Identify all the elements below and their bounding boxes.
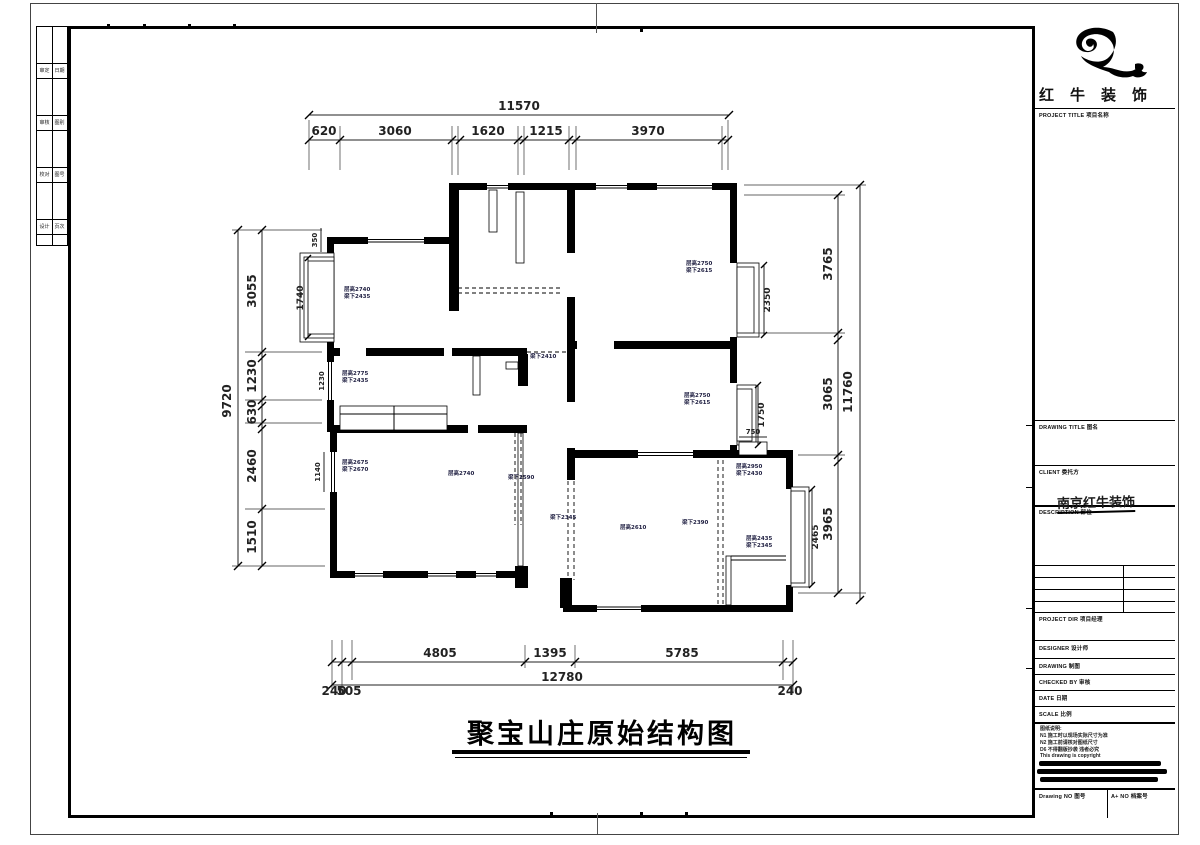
room-label: 梁下2345: [549, 513, 576, 521]
room-label: 梁下2590: [507, 473, 534, 481]
room-label: 梁下2615: [685, 266, 712, 274]
title-block: 红牛装饰 PROJECT TITLE 项目名称 DRAWING TITLE 图名…: [1032, 26, 1175, 818]
dim-bottom-total: 12780: [541, 670, 583, 684]
room-label: 层高2740: [344, 285, 370, 293]
room-label: 梁下2615: [683, 398, 710, 406]
redacted-note: [1039, 761, 1161, 766]
tb-divider: [1035, 577, 1175, 578]
tb-note: 图纸说明:: [1040, 725, 1062, 732]
tb-divider: [1035, 420, 1175, 421]
dim-right-seg: 3065: [821, 377, 835, 410]
room-label: 梁下2435: [343, 292, 370, 300]
dim-bottom-end: 505: [336, 684, 361, 698]
tb-divider: [1035, 589, 1175, 590]
redacted-note: [1037, 769, 1167, 774]
tb-drawing-no-label: Drawing NO 图号: [1039, 792, 1086, 800]
tb-table-divider: [1123, 565, 1124, 612]
room-label: 层高2950: [736, 462, 762, 470]
dim-left-seg: 1510: [245, 520, 259, 553]
tb-divider: [1035, 601, 1175, 602]
dim-left-seg: 630: [245, 399, 259, 424]
tb-divider: [1035, 465, 1175, 466]
tb-drawing-title-label: DRAWING TITLE 图名: [1039, 423, 1098, 431]
room-label: 梁下2410: [529, 352, 556, 360]
tb-project-dir-label: PROJECT DIR 项目经理: [1039, 615, 1103, 623]
dim-right-seg: 3965: [821, 507, 835, 540]
dim-left-total: 9720: [220, 384, 234, 417]
dim-left-seg: 3055: [245, 274, 259, 307]
tb-divider: [1035, 565, 1175, 566]
title-underline-thin: [455, 757, 747, 758]
room-label: 梁下2670: [341, 465, 368, 473]
dim-bottom: 4805 1395 5785 12780 240 505 240: [321, 640, 802, 698]
tb-divider: [1035, 788, 1175, 790]
company-name: 红牛装饰: [1039, 84, 1163, 105]
room-label: 层高2675: [342, 458, 368, 466]
tb-project-title-label: PROJECT TITLE 项目名称: [1039, 111, 1109, 119]
tb-divider: [1035, 674, 1175, 675]
tb-note: N1 施工时以现场实际尺寸为准: [1040, 732, 1108, 739]
dim-top-seg: 3060: [378, 124, 411, 138]
room-label: 梁下2345: [745, 541, 772, 549]
tb-scale-label: SCALE 比例: [1039, 710, 1072, 718]
dim-top-seg: 1215: [529, 124, 562, 138]
tb-archive-no-label: A+ NO 档案号: [1111, 792, 1148, 800]
room-label: 梁下2390: [681, 518, 708, 526]
room-label: 层高2435: [746, 534, 772, 542]
room-label: 层高2750: [686, 259, 712, 267]
dragon-logo-icon: [1035, 26, 1175, 82]
tb-divider: [1035, 690, 1175, 691]
room-label: 梁下2430: [735, 469, 762, 477]
tb-divider: [1035, 640, 1175, 641]
tb-client-label: CLIENT 委托方: [1039, 468, 1079, 476]
dim-right-seg: 3765: [821, 247, 835, 280]
dim-left-seg: 1230: [245, 359, 259, 392]
tb-designer-label: DESIGNER 设计师: [1039, 644, 1088, 652]
dim-top: 11570 620 3060 1620 1215 3970: [305, 99, 733, 175]
beam-dashed-lines: [458, 288, 723, 605]
dim-win-left-low: 1140: [314, 462, 322, 482]
tb-divider: [1035, 108, 1175, 109]
dim-bottom-seg: 4805: [423, 646, 456, 660]
dim-right-total: 11760: [841, 371, 855, 413]
dim-bottom-seg: 5785: [665, 646, 698, 660]
room-labels: 层高2740 梁下2435 层高2750 梁下2615 层高2750 梁下261…: [341, 259, 772, 549]
room-label: 层高2610: [620, 523, 646, 531]
tb-divider: [1035, 706, 1175, 707]
tb-note: This drawing is copyright: [1040, 753, 1101, 759]
dim-win-left-mid: 1230: [318, 371, 326, 391]
dim-top-seg: 1620: [471, 124, 504, 138]
tb-date-label: DATE 日期: [1039, 694, 1068, 702]
sheet-title: 聚宝山庄原始结构图: [452, 712, 752, 751]
dim-balcony-h: 1740: [296, 285, 306, 310]
room-label: 梁下2435: [341, 376, 368, 384]
tb-divider: [1035, 658, 1175, 659]
room-label: 层高2775: [342, 369, 368, 377]
dim-top-total: 11570: [498, 99, 540, 113]
tb-checked-label: CHECKED BY 审核: [1039, 678, 1090, 686]
room-label: 层高2750: [684, 391, 710, 399]
dim-win-r1: 2350: [763, 287, 773, 312]
room-label: 层高2740: [448, 469, 474, 477]
tb-table-divider: [1107, 788, 1108, 818]
tb-divider: [1035, 722, 1175, 724]
dim-win-r2: 1750: [757, 402, 767, 427]
tb-note: N2 施工前请核对图纸尺寸: [1040, 739, 1098, 746]
dim-left-seg: 2460: [245, 449, 259, 482]
tb-description-value: 南京红牛装饰: [1057, 491, 1136, 514]
dim-win-r3: 2465: [811, 524, 821, 549]
dim-bottom-seg: 1395: [533, 646, 566, 660]
tb-divider: [1035, 612, 1175, 613]
dim-top-seg: 3970: [631, 124, 664, 138]
dim-top-seg: 620: [311, 124, 336, 138]
tb-drawing-label: DRAWING 制图: [1039, 662, 1080, 670]
dim-niche: 750: [746, 428, 761, 436]
title-underline-thick: [452, 750, 750, 754]
redacted-note: [1040, 777, 1158, 782]
tb-note: D6 不得翻版抄袭 违者必究: [1040, 746, 1099, 753]
dim-bottom-end: 240: [777, 684, 802, 698]
dim-balcony-t: 350: [311, 233, 319, 248]
